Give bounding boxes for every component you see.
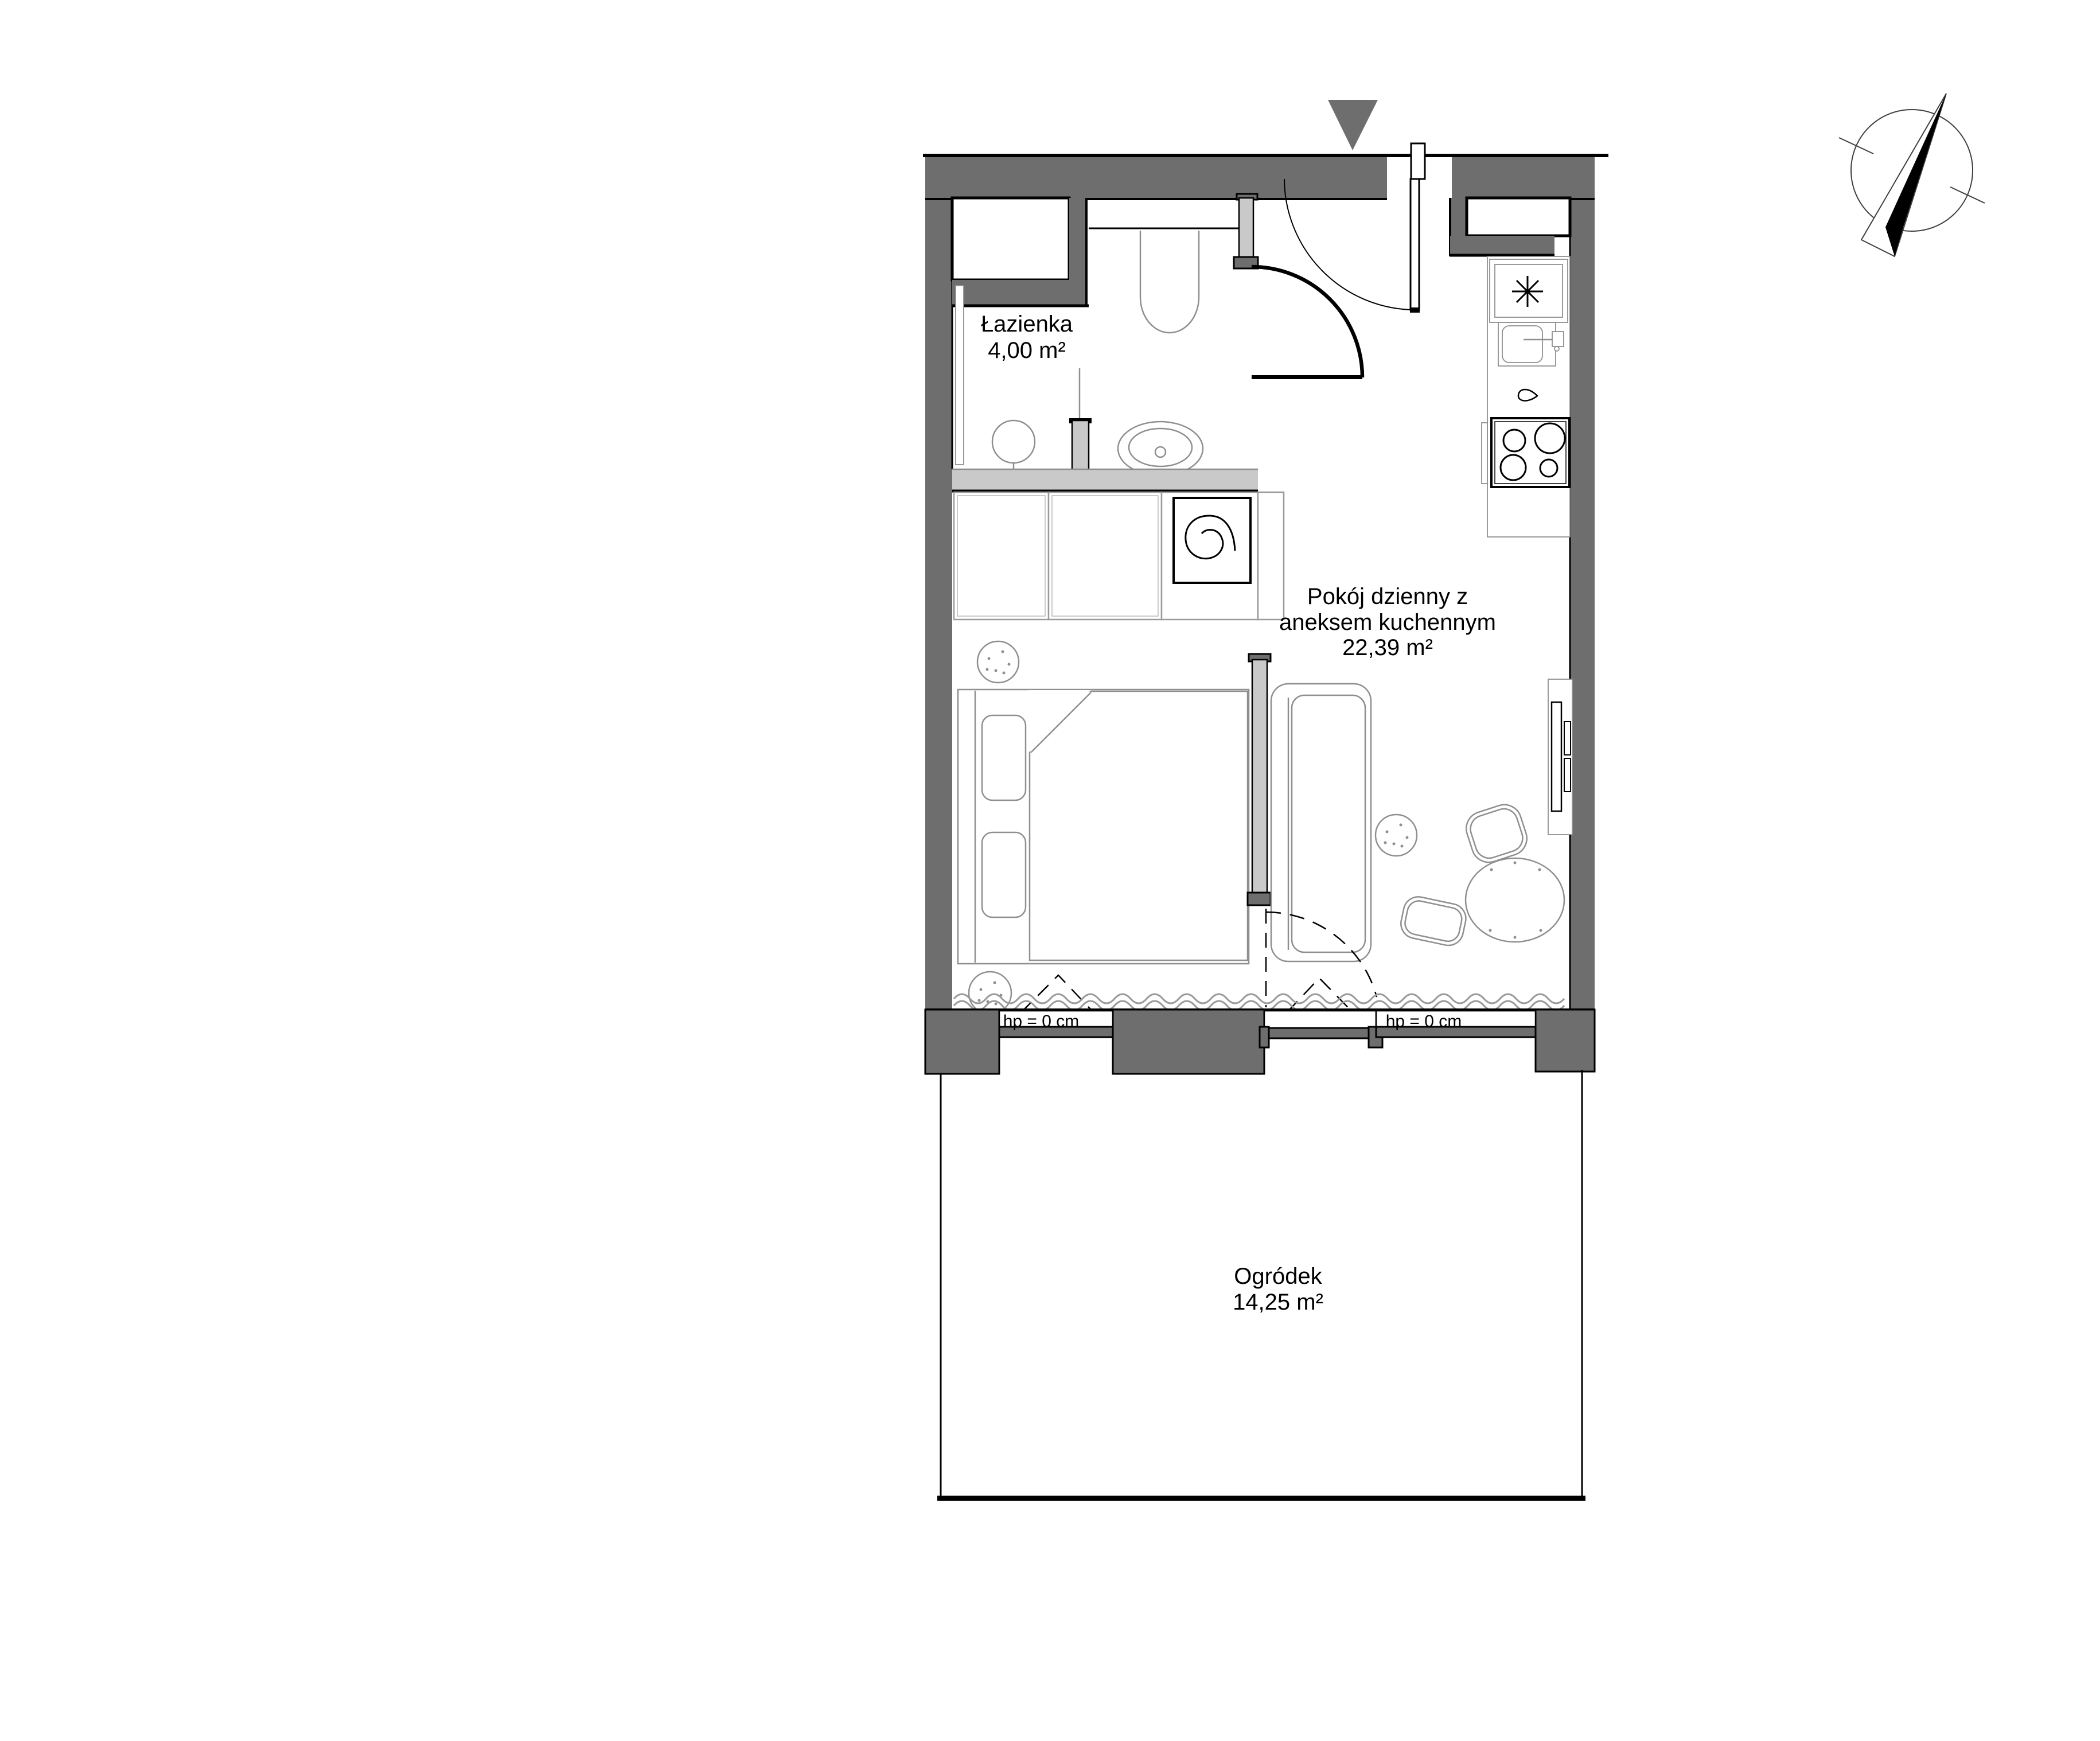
bathroom: Łazienka 4,00 m² <box>952 198 1258 492</box>
bathroom-label: Łazienka <box>981 311 1073 337</box>
kitchen-niche <box>1450 198 1570 256</box>
floor-plan-page: Łazienka 4,00 m² <box>0 0 2100 1741</box>
bathroom-niche-strip <box>952 280 1086 306</box>
entrance-door-frame <box>1411 143 1425 179</box>
compass-tick-nw <box>1839 138 1873 154</box>
bathroom-door <box>1234 194 1362 379</box>
garden: Ogródek 14,25 m² <box>937 1070 1585 1499</box>
window-sill-label-right: hp = 0 cm <box>1386 1012 1462 1031</box>
kitchen <box>1482 256 1570 537</box>
toilet-icon <box>1140 231 1199 333</box>
garden-label: Ogródek <box>1234 1264 1322 1289</box>
armchair-1 <box>1462 800 1531 867</box>
pillow-1 <box>982 715 1026 800</box>
plant-1 <box>977 641 1019 683</box>
pier-right <box>1536 1010 1595 1072</box>
right-wall <box>1570 157 1595 1015</box>
bathroom-pony-wall <box>952 469 1258 491</box>
niche-bottom-strip <box>1450 236 1554 254</box>
entrance-door-leaf <box>1411 179 1419 310</box>
window-sill-label-left: hp = 0 cm <box>1003 1012 1080 1031</box>
oven-handle <box>1482 423 1487 484</box>
curtain-wavy-line <box>954 994 1564 1010</box>
kitchen-sink-icon <box>1498 322 1564 366</box>
floor-plan-canvas: Łazienka 4,00 m² <box>0 0 2100 1741</box>
window-wall: hp = 0 cm hp = 0 cm <box>925 1010 1595 1074</box>
top-wall-left <box>925 157 1387 198</box>
sofa <box>1271 684 1371 961</box>
living-label-line2: aneksem kuchennym <box>1279 610 1496 635</box>
pillow-2 <box>982 832 1026 917</box>
compass-needle-black <box>1885 94 1946 256</box>
pier-left <box>925 1010 999 1074</box>
kitchen-niche-recess <box>1467 198 1570 236</box>
north-compass-icon <box>1839 94 1985 256</box>
round-chair <box>1466 858 1564 942</box>
cabinet-2 <box>1049 492 1162 620</box>
left-wall <box>925 157 952 1015</box>
garden-area: 14,25 m² <box>1233 1290 1323 1315</box>
cabinet-row <box>954 492 1284 620</box>
tv-stand <box>1248 654 1271 905</box>
bathroom-door-leaf <box>1239 198 1253 258</box>
wardrobe <box>1548 679 1572 835</box>
cabinet-1 <box>954 492 1049 620</box>
bathroom-door-swing-arc <box>1252 267 1362 377</box>
pier-center <box>1113 1010 1264 1074</box>
bed <box>958 690 1249 964</box>
bathroom-area: 4,00 m² <box>988 338 1066 363</box>
armchair-2 <box>1398 894 1468 948</box>
compass-tick-se <box>1950 187 1985 203</box>
shower-panel <box>956 286 964 465</box>
fridge-frost-asterisk-icon <box>1512 276 1543 307</box>
living-room-label: Pokój dzienny z aneksem kuchennym 22,39 … <box>1279 584 1496 660</box>
bathroom-niche <box>952 198 1069 280</box>
living-label-line1: Pokój dzienny z <box>1307 584 1468 609</box>
balcony-door-window <box>1260 1011 1382 1047</box>
cooktop <box>1482 418 1569 487</box>
bathroom-door-closed-line <box>1252 375 1362 379</box>
plant-3 <box>1376 815 1417 856</box>
living-area: 22,39 m² <box>1342 635 1433 660</box>
cabinet-end-panel <box>1258 492 1284 620</box>
entrance-arrow-icon <box>1328 100 1378 150</box>
duvet <box>1030 691 1248 960</box>
fridge <box>1490 259 1568 322</box>
top-wall-edge-line <box>923 154 1608 157</box>
compass-needle-white <box>1861 94 1946 256</box>
